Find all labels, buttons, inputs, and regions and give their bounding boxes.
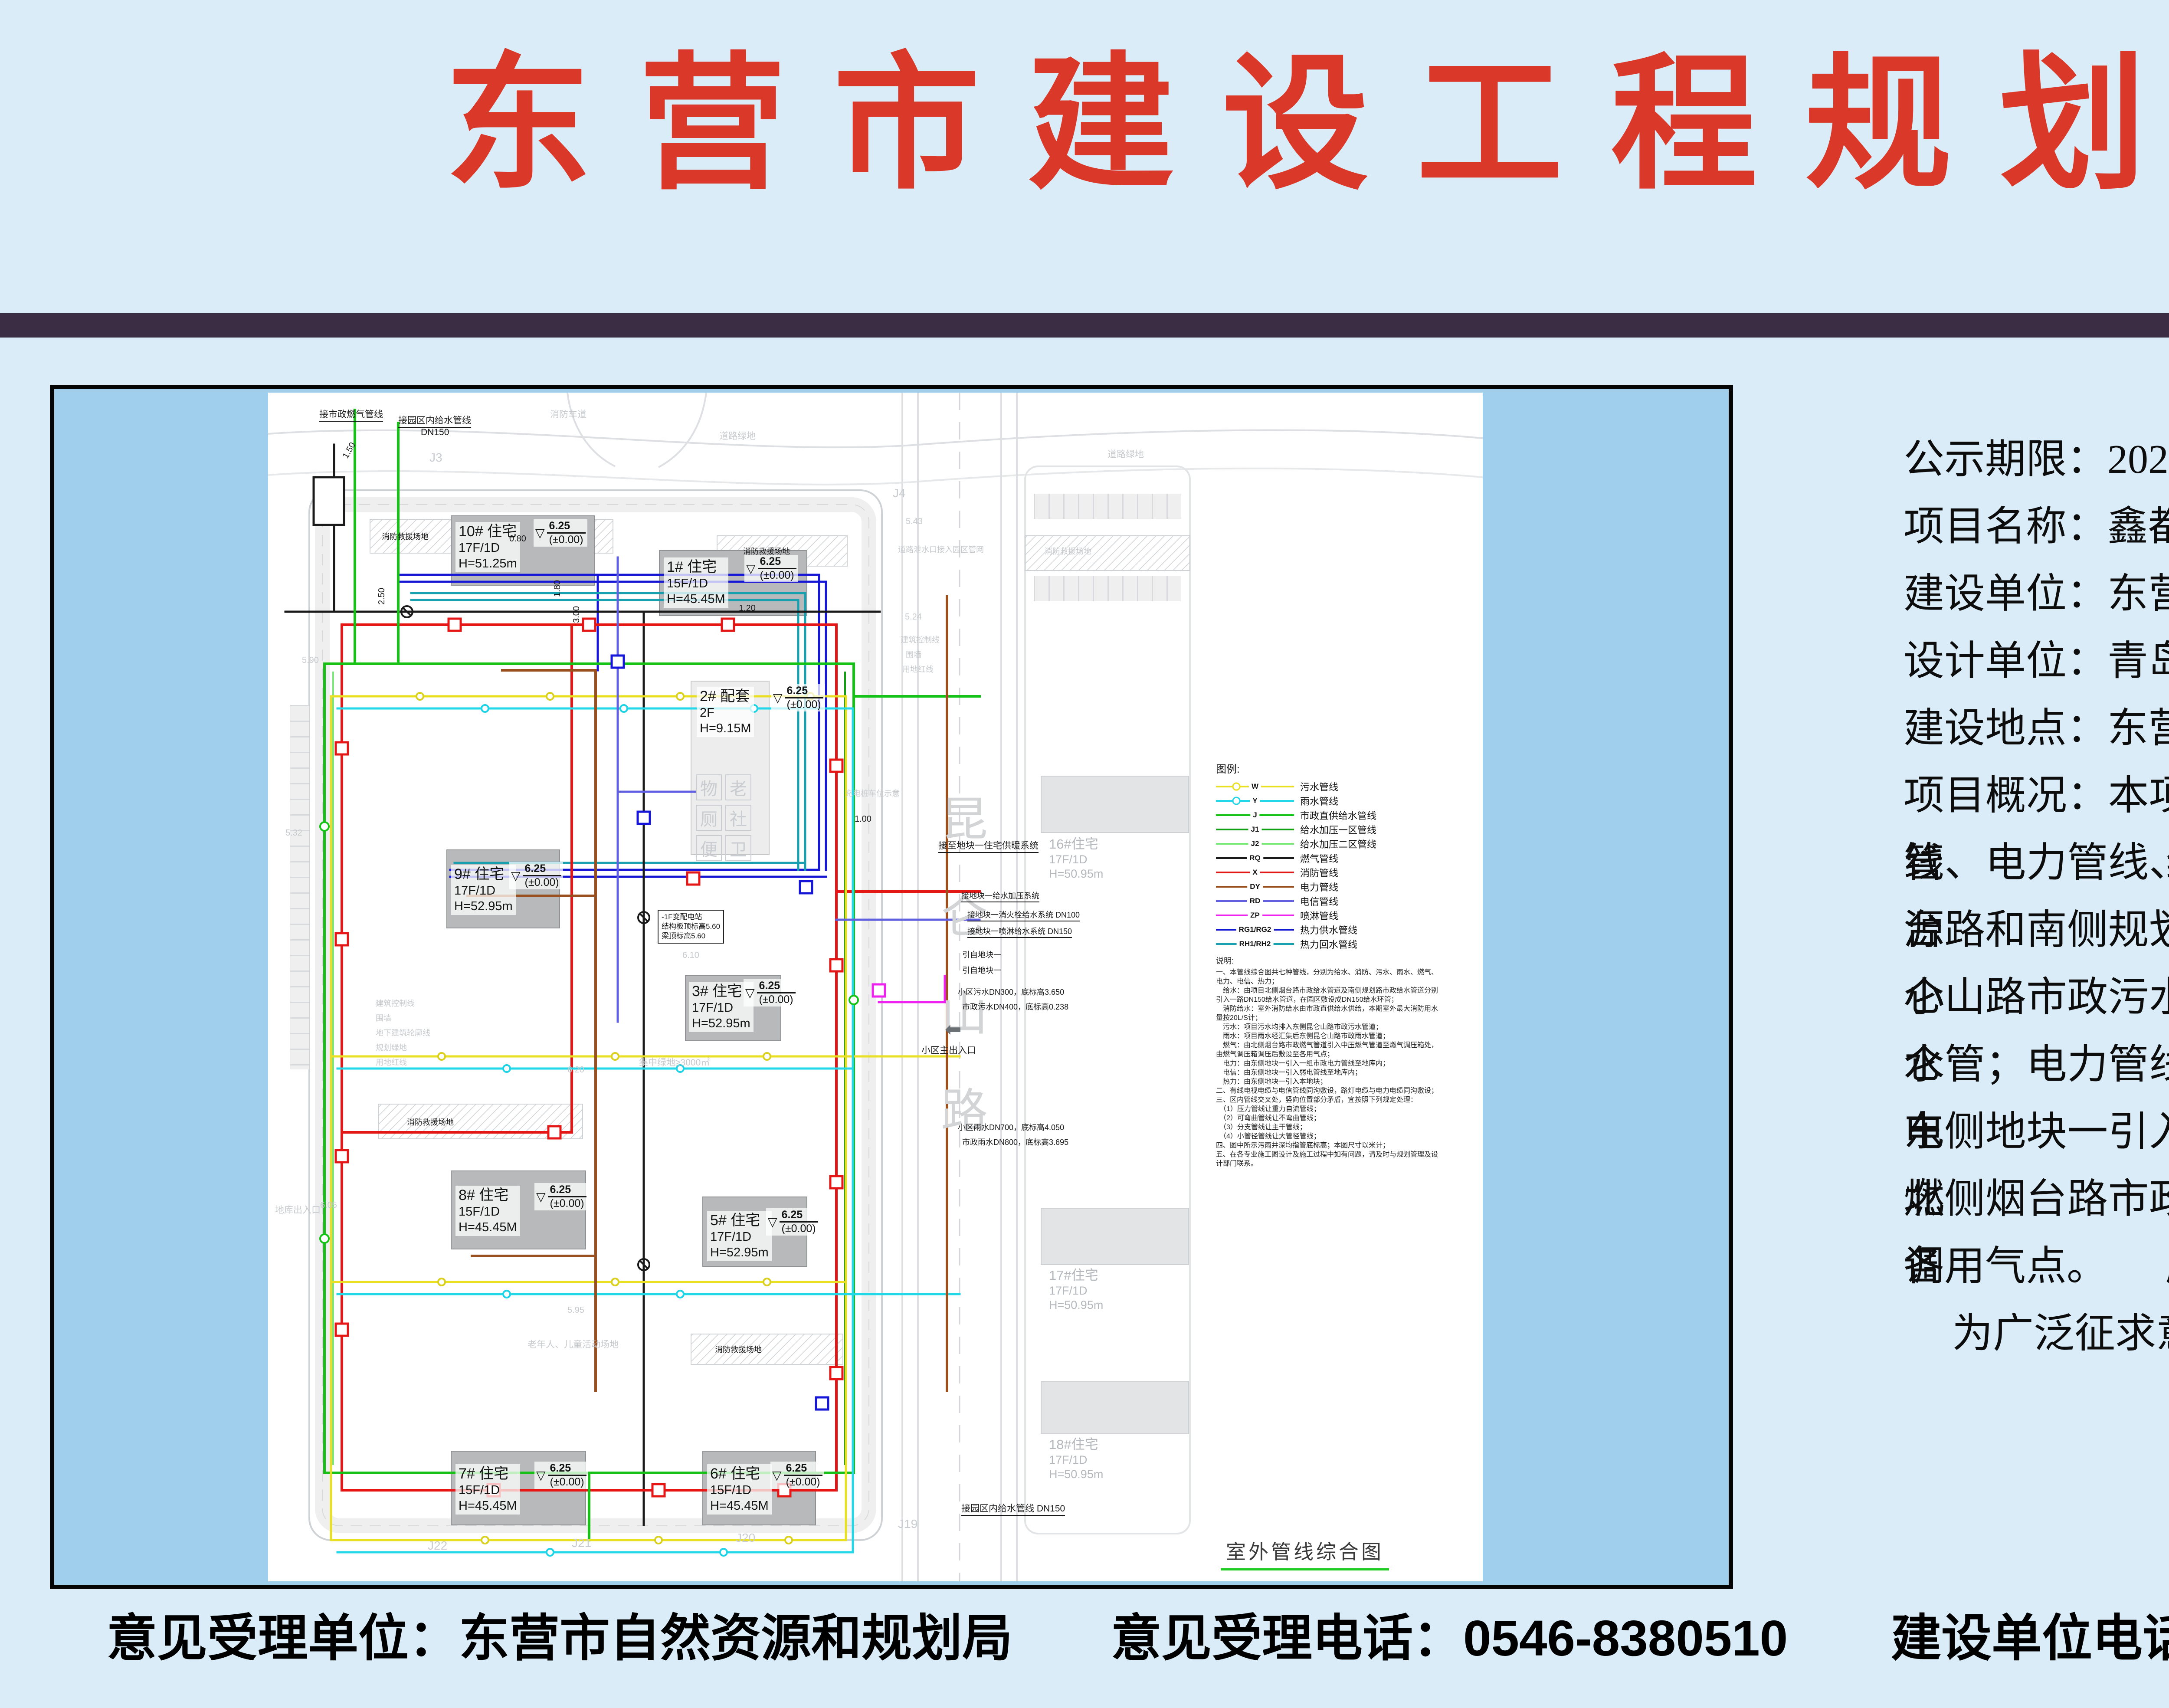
entrance-arrow-icon: ⬅ [945,1017,962,1041]
marker-j20: J20 [736,1531,755,1545]
legend-line-sprinkler: ZP [1216,915,1294,916]
annotation-from-block1-a: 引自地块一 [962,949,1001,960]
annotation-rain-2: 市政雨水DN800，底标高3.695 [962,1136,1068,1147]
service-cell: 老 [725,774,751,800]
annotation-dn150: DN150 [421,427,449,438]
elevation-mark-9: ▽ 6.25(±0.00) [509,862,563,889]
annotation-sewage-1: 小区污水DN300，底标高3.650 [958,986,1064,997]
datum-triangle-icon: ▽ [536,1191,546,1203]
label-wall: 围墙 [376,1012,391,1023]
dim-text: 0.80 [509,534,526,544]
spot-level: 5.90 [302,656,319,665]
spot-level: 6.10 [682,951,699,961]
legend: 图例: W 污水管线 Y 雨水管线 J 市政直供给水管线 J1 给水加压一区管线 [1216,761,1376,951]
building-label-1: 1# 住宅15F/1DH=45.45M [664,557,728,608]
marker-j4: J4 [893,486,906,500]
building-label-2: 2# 配套2FH=9.15M [697,687,754,737]
footer-accept-phone: 意见受理电话：0546-8380510 [1111,1608,1788,1669]
spot-level: 5.32 [285,828,302,838]
annotation-garage-entry: 地库出入口 [275,1203,321,1216]
building-label-16: 16#住宅17F/1DH=50.95m [1049,836,1103,881]
annotation-fire-rescue-4: 消防救援场地 [715,1344,762,1355]
annotation-heat-connect: 接至地块一住宅供暖系统 [938,839,1039,853]
marker-j22: J22 [428,1539,447,1553]
info-line: 水管；电力管线：由东侧地块一引入一组市政电力管线至地下车库配电室；电信管线：由 [1904,1031,2169,1098]
service-cell: 社 [725,805,751,831]
legend-line-water: J [1216,814,1294,816]
drawing-notes: 说明: 一、本管线综合图共七种管线，分别为给水、消防、污水、雨水、燃气、电力、电… [1216,955,1442,1168]
annotation-elder-play: 老年人、儿童活动场地 [528,1338,619,1351]
dim-text: 3.00 [572,606,582,623]
legend-row: DY 电力管线 [1216,879,1376,894]
annotation-fire-rescue-3: 消防救援场地 [407,1116,454,1128]
annotation-park-water: 接园区内给水管线 [398,413,471,428]
sprinkler-symbol [873,984,885,997]
info-line: 为广泛征求意见，现对该项目进行规划方案公示。 [1904,1300,2169,1367]
marker-j3: J3 [429,451,442,465]
info-line: 东侧地块一引入弱电管线至地库内；热力管线：由东侧地块一引入本地块；燃气管由：由 [1904,1098,2169,1166]
annotation-rain-1: 小区雨水DN700，底标高4.050 [958,1121,1064,1133]
annotation-power-station: -1F变配电站 结构板顶标高5.60 梁顶标高5.60 [658,910,724,944]
spot-level: 5.95 [567,1305,584,1315]
datum-triangle-icon: ▽ [746,563,756,575]
building-label-5: 5# 住宅17F/1DH=52.95m [707,1211,772,1261]
page-title: 东营市建设工程规划方案公示 [0,51,2169,201]
spot-level-100: 1.00 [855,814,872,824]
legend-row: J2 给水加压二区管线 [1216,836,1376,851]
legend-row: RG1/RG2 热力供水管线 [1216,922,1376,937]
site-plan-panel: 昆仑山路 10# 住宅17F/1DH=51.25m ▽ 6.25(±0.00) … [50,385,1733,1589]
elevation-mark-3: ▽ 6.25(±0.00) [744,979,797,1006]
legend-line-gas: RQ [1216,857,1294,859]
spot-level: 5.43 [906,517,923,527]
info-line: 建设单位：东营鑫旭置业有限公司 [1904,561,2169,628]
label-underground: 地下建筑轮廓线 [376,1027,430,1038]
datum-triangle-icon: ▽ [511,870,521,882]
elevation-mark-7: ▽ 6.25(±0.00) [534,1462,588,1489]
label-red-line-e: 用地红线 [902,663,934,675]
spot-level: 5.24 [905,612,922,622]
datum-triangle-icon: ▽ [773,692,783,704]
label-wall-e: 围墙 [906,649,921,660]
notes-heading: 说明: [1216,955,1442,966]
drawing-title: 室外管线综合图 [1221,1536,1389,1570]
elevation-mark-8: ▽ 6.25(±0.00) [534,1183,588,1210]
building-label-8: 8# 住宅15F/1DH=45.45M [455,1186,520,1236]
service-cell: 卫 [725,835,751,861]
info-line: 台路和南侧规划路市政给水管网；污水管线：由新建污水管道汇流后，排入小区外东侧昆 [1904,897,2169,964]
dim-text: 2.50 [377,588,387,605]
marker-j21: J21 [572,1536,591,1550]
elevation-mark-10: ▽ 6.25(±0.00) [534,519,587,547]
dim-text: 1.80 [553,580,563,597]
info-line: 建设地点：东营市东营区胜利街道，庐山路以东、烟台路以南。 [1904,695,2169,762]
service-cell: 厕 [696,805,722,831]
building-label-10: 10# 住宅17F/1DH=51.25m [455,522,520,572]
annotation-gas-tap: 接市政燃气管线 [319,407,383,422]
building-label-9: 9# 住宅17F/1DH=52.95m [451,865,516,915]
label-plan-green: 规划绿地 [376,1042,407,1053]
info-line: 线、电力管线、电信管线、热力管线等。本项目生活给水管线、消防管线水源引自北侧烟 [1904,829,2169,897]
info-line: 北侧烟台路市政燃气管道引入中压燃气管道至燃气调压箱处，由燃气调压箱调压后敷设至 [1904,1166,2169,1233]
spot-level: 6.05 [320,1200,337,1210]
buildings-layer [447,516,1189,1525]
elevation-mark-2: ▽ 6.25(±0.00) [771,684,825,711]
marker-j19: J19 [898,1517,917,1531]
legend-line-water-z2: J2 [1216,843,1294,845]
info-line: 仑山路市政污水管；雨水管线：由新建雨水管道汇流后，排入小区外东侧昆仑山路市政雨 [1904,964,2169,1031]
annotation-from-block1-b: 引自地块一 [962,964,1001,976]
legend-row: RD 电信管线 [1216,894,1376,908]
legend-line-power: DY [1216,886,1294,888]
legend-row: J 市政直供给水管线 [1216,808,1376,822]
project-info: 公示期限：2025 年 8 月 26 日至 2025 年 9 月 3 日共计 7… [1904,426,2169,1367]
datum-triangle-icon: ▽ [768,1216,777,1228]
annotation-charge-note: 充电桩车位示意 [845,787,900,799]
annotation-fire-rescue-1: 消防救援场地 [382,531,429,542]
footer-builder-phone: 建设单位电话：0546-6718888 [1891,1608,2169,1669]
annotation-hydrant-connect: 接地块一消火栓给水系统 DN100 [967,909,1080,921]
service-cell: 物 [696,774,722,800]
annotation-spray-connect: 接地块一喷淋给水系统 DN150 [967,925,1072,938]
legend-row: J1 给水加压一区管线 [1216,822,1376,836]
legend-line-water-z1: J1 [1216,829,1294,830]
elevation-mark-5: ▽ 6.25(±0.00) [766,1208,820,1236]
building-label-18: 18#住宅17F/1DH=50.95m [1049,1436,1103,1482]
dim-text: 1.20 [739,603,756,613]
annotation-fire-rescue-5: 消防救援场地 [1045,545,1091,557]
info-line: 公示期限：2025 年 8 月 26 日至 2025 年 9 月 3 日共计 7… [1904,426,2169,493]
legend-line-telecom: RD [1216,900,1294,902]
elevation-mark-1: ▽ 6.25(±0.00) [744,555,798,582]
annotation-road-green: 道路绿地 [719,429,756,442]
legend-row: X 消防管线 [1216,865,1376,879]
notice-poster: 东营市建设工程规划方案公示 [0,0,2169,1708]
gas-regulator-box [314,477,344,525]
legend-line-fire: X [1216,872,1294,873]
elevation-mark-6: ▽ 6.25(±0.00) [770,1462,824,1489]
service-cell: 便 [696,835,722,861]
datum-triangle-icon: ▽ [536,1469,546,1482]
label-bldg-ctrl-e: 建筑控制线 [901,634,940,645]
annotation-park-water-dn: 接园区内给水管线 DN150 [961,1501,1065,1516]
legend-line-heat-return: RH1/RH2 [1216,943,1294,945]
legend-row: Y 雨水管线 [1216,793,1376,808]
legend-row: RQ 燃气管线 [1216,851,1376,865]
building-label-17: 17#住宅17F/1DH=50.95m [1049,1267,1103,1312]
service-rooms-grid: 物 老 厕 社 便 卫 [696,774,750,861]
divider-bar [0,313,2169,338]
spot-level: 6.20 [567,1065,584,1075]
datum-triangle-icon: ▽ [745,987,755,999]
building-label-6: 6# 住宅15F/1DH=45.45M [707,1464,772,1515]
annotation-central-green: 集中绿地≥3000㎡ [639,1056,710,1069]
legend-row: W 污水管线 [1216,779,1376,793]
legend-heading: 图例: [1216,761,1376,776]
datum-triangle-icon: ▽ [772,1469,782,1482]
label-red-line: 用地红线 [376,1056,407,1068]
info-line: 项目概况：本项目室外配套包括生活给水管线、消防管线、污水管线、雨水管线、燃气管 [1904,762,2169,829]
footer-accept-unit: 意见受理单位：东营市自然资源和规划局 [107,1608,1012,1669]
legend-line-rain: Y [1216,800,1294,802]
annotation-boost-connect: 接地块一给水加压系统 [961,890,1039,902]
info-line: 设计单位：青岛腾远设计事务所有限公司 [1904,628,2169,695]
label-bldg-ctrl: 建筑控制线 [376,997,415,1009]
legend-row: ZP 喷淋管线 [1216,908,1376,922]
info-line: 项目名称：鑫都 · 国子甲第地块二室外配套工程 [1904,493,2169,561]
annotation-fire-rescue-2: 消防救援场地 [743,545,790,557]
legend-row: RH1/RH2 热力回水管线 [1216,937,1376,951]
datum-triangle-icon: ▽ [535,527,545,539]
footer: 意见受理单位：东营市自然资源和规划局 意见受理电话：0546-8380510 建… [0,1608,2169,1673]
annotation-road-green-2: 道路绿地 [1107,447,1144,460]
annotation-drain-note: 道路泄水口接入园区管网 [898,544,984,555]
legend-line-heat-supply: RG1/RG2 [1216,929,1294,931]
annotation-fire-lane: 消防车道 [550,407,586,420]
drawing-sheet: 昆仑山路 10# 住宅17F/1DH=51.25m ▽ 6.25(±0.00) … [268,393,1483,1581]
legend-line-sewage: W [1216,786,1294,787]
annotation-main-entrance: 小区主出入口 [921,1043,976,1056]
notes-text: 一、本管线综合图共七种管线，分别为给水、消防、污水、雨水、燃气、电力、电信、热力… [1216,968,1442,1168]
annotation-sewage-2: 市政污水DN400，底标高0.238 [962,1001,1068,1012]
building-label-7: 7# 住宅15F/1DH=45.45M [455,1464,520,1515]
